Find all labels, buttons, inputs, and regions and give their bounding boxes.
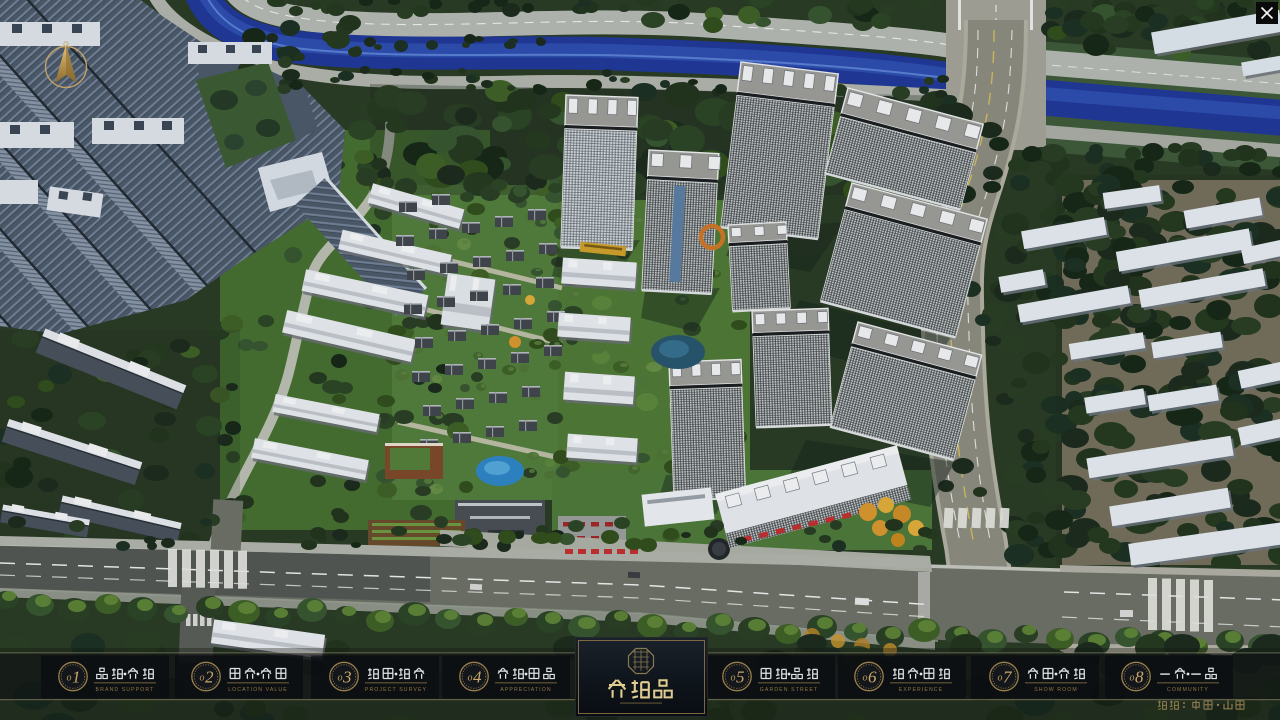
- svg-text:5: 5: [736, 668, 745, 687]
- svg-text:o: o: [468, 673, 473, 684]
- svg-text:GARDEN STREET: GARDEN STREET: [760, 687, 818, 693]
- svg-text:SHOW ROOM: SHOW ROOM: [1034, 687, 1078, 693]
- svg-text:4: 4: [473, 668, 482, 687]
- svg-text:APPRECIATION: APPRECIATION: [500, 687, 551, 693]
- svg-text:o: o: [863, 673, 868, 684]
- svg-text:o: o: [731, 673, 736, 684]
- svg-text:o: o: [67, 673, 72, 684]
- svg-text:PROJECT SURVEY: PROJECT SURVEY: [365, 687, 427, 693]
- svg-text:o: o: [200, 673, 205, 684]
- svg-text:o: o: [998, 673, 1003, 684]
- svg-text:8: 8: [1135, 668, 1144, 687]
- svg-text:3: 3: [342, 668, 352, 687]
- svg-text:LOCATION VALUE: LOCATION VALUE: [228, 687, 288, 693]
- svg-text:o: o: [338, 673, 343, 684]
- svg-text:o: o: [1130, 673, 1135, 684]
- svg-text:6: 6: [868, 668, 877, 687]
- svg-text:1: 1: [72, 668, 81, 687]
- svg-text:BRAND SUPPORT: BRAND SUPPORT: [96, 687, 155, 693]
- svg-text:EXPERIENCE: EXPERIENCE: [899, 687, 943, 693]
- svg-text:2: 2: [205, 668, 214, 687]
- svg-text:COMMUNITY: COMMUNITY: [1167, 687, 1209, 693]
